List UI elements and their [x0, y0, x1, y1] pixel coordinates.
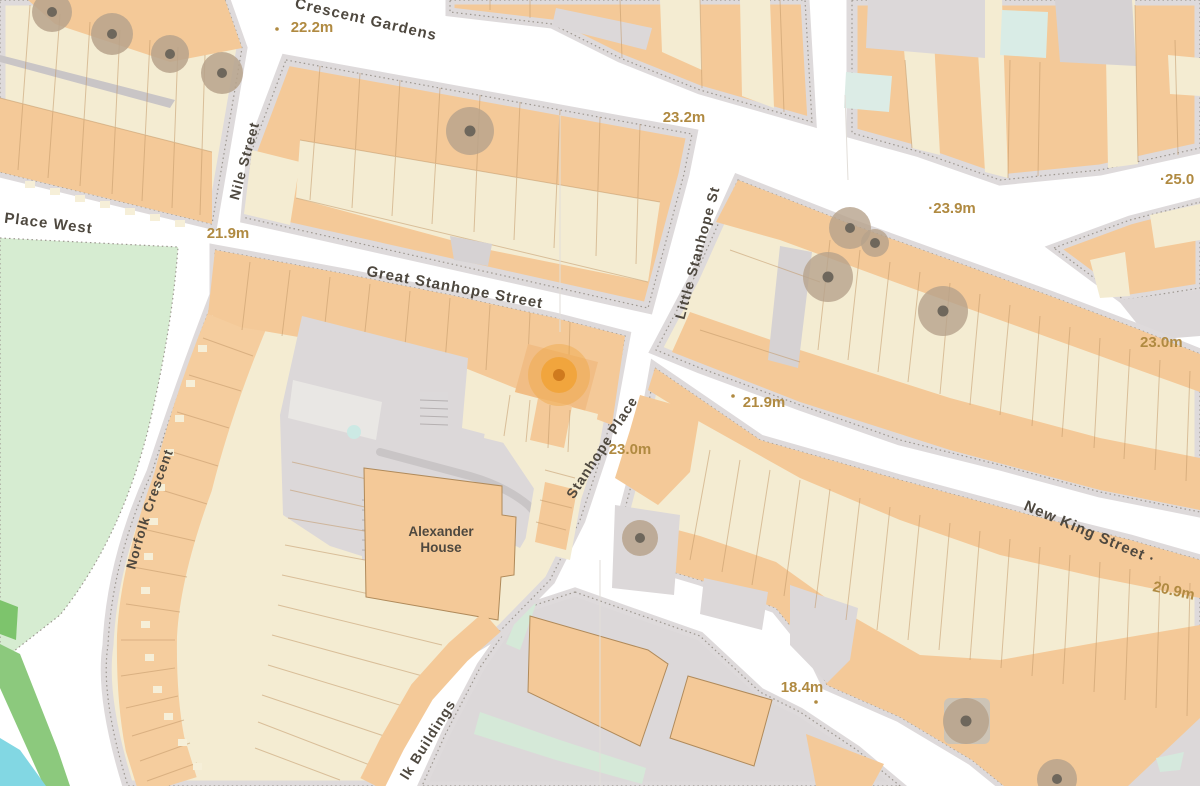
svg-text:21.9m: 21.9m — [207, 225, 250, 242]
svg-text:·25.0: ·25.0 — [1160, 171, 1194, 188]
svg-text:·23.9m: ·23.9m — [928, 200, 976, 217]
svg-text:23.0m: 23.0m — [609, 441, 652, 458]
svg-text:23.2m: 23.2m — [663, 109, 706, 126]
svg-text:22.2m: 22.2m — [291, 19, 334, 36]
svg-text:House: House — [420, 540, 462, 555]
svg-text:21.9m: 21.9m — [743, 394, 786, 411]
svg-text:Alexander: Alexander — [408, 524, 474, 539]
svg-text:23.0m: 23.0m — [1140, 334, 1183, 351]
svg-text:18.4m: 18.4m — [781, 679, 824, 696]
